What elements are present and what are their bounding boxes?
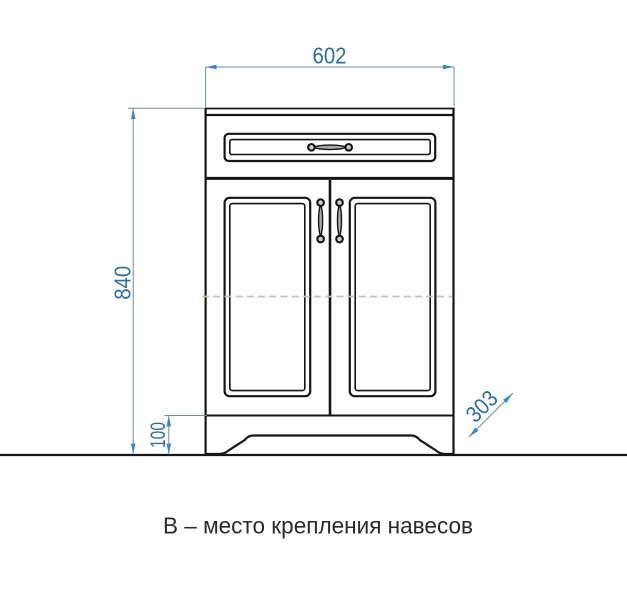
svg-text:100: 100	[146, 422, 170, 448]
svg-text:303: 303	[460, 385, 502, 427]
svg-text:602: 602	[313, 43, 347, 69]
svg-text:В – место крепления навесов: В – место крепления навесов	[163, 513, 473, 539]
svg-text:840: 840	[110, 266, 136, 300]
